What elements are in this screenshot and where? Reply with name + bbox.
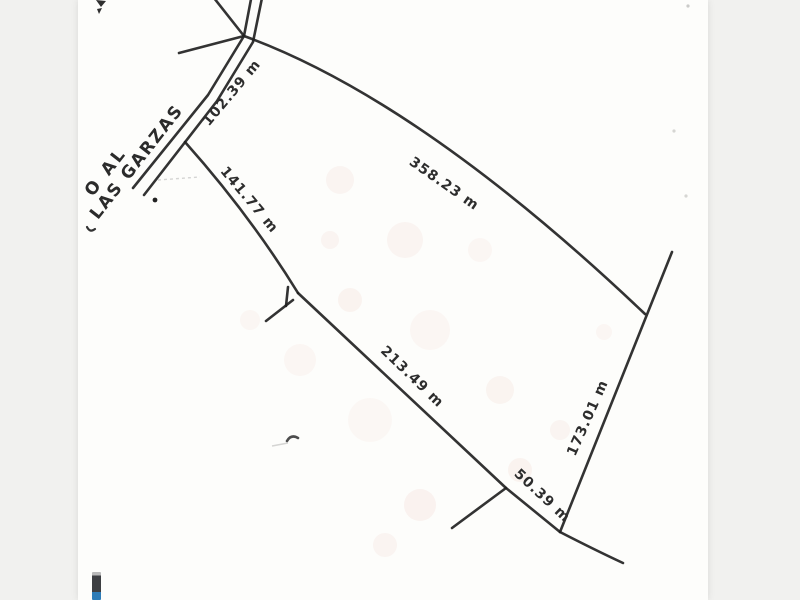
extension-southeast: [560, 532, 623, 563]
boundary-south-213: [298, 293, 506, 488]
ink-smudge-tail: [272, 443, 288, 446]
parcel-boundary-drawing: [0, 0, 800, 600]
corner-spur-west: [266, 300, 293, 321]
boundary-east-173: [560, 252, 672, 532]
boundary-west-141: [185, 142, 298, 293]
corner-spur-south: [452, 488, 506, 528]
survey-point-dot: [153, 198, 158, 203]
cropped-glyph-before-road-name: [87, 227, 95, 231]
scanned-plot-plan: O AL LAS GARZAS 102.39 m 358.23 m 141.77…: [0, 0, 800, 600]
scan-dust-dots: [672, 4, 689, 197]
faint-erased-line: [158, 177, 200, 180]
extension-north: [214, 0, 244, 36]
watermark-logo-fragment: [92, 572, 101, 600]
cropped-glyph-top-left: [96, 0, 106, 14]
ink-smudge: [287, 437, 298, 441]
